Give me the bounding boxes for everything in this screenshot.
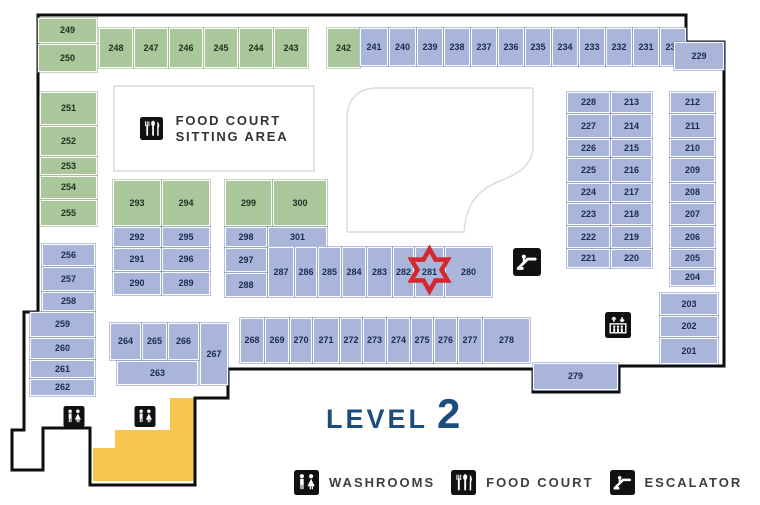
map-unit-249[interactable]: 249	[38, 18, 97, 43]
map-unit-237[interactable]: 237	[471, 28, 497, 66]
map-unit-203[interactable]: 203	[660, 293, 718, 315]
legend-item-food-court: FOOD COURT	[451, 470, 593, 495]
map-unit-296[interactable]: 296	[162, 248, 210, 271]
map-unit-264[interactable]: 264	[110, 323, 141, 360]
map-unit-281[interactable]: 281	[415, 247, 444, 297]
map-unit-233[interactable]: 233	[579, 28, 605, 66]
map-unit-292[interactable]: 292	[113, 227, 161, 247]
map-unit-263[interactable]: 263	[117, 361, 198, 385]
map-unit-294[interactable]: 294	[162, 180, 210, 226]
map-unit-266[interactable]: 266	[168, 323, 199, 360]
map-unit-255[interactable]: 255	[40, 200, 97, 226]
map-unit-228[interactable]: 228	[567, 92, 610, 113]
map-unit-275[interactable]: 275	[411, 318, 433, 363]
atrium-void	[347, 88, 533, 232]
map-unit-250[interactable]: 250	[38, 44, 97, 72]
map-unit-262[interactable]: 262	[30, 379, 95, 396]
map-unit-287[interactable]: 287	[268, 247, 294, 297]
map-unit-224[interactable]: 224	[567, 183, 610, 202]
map-unit-251[interactable]: 251	[40, 92, 97, 125]
map-unit-202[interactable]: 202	[660, 316, 718, 337]
map-unit-219[interactable]: 219	[611, 226, 652, 248]
map-unit-223[interactable]: 223	[567, 203, 610, 225]
map-unit-222[interactable]: 222	[567, 226, 610, 248]
legend-label: WASHROOMS	[329, 475, 435, 490]
escalator-icon	[513, 248, 541, 276]
map-unit-217[interactable]: 217	[611, 183, 652, 202]
map-unit-241[interactable]: 241	[360, 28, 388, 66]
level-title: LEVEL 2	[326, 390, 460, 438]
map-unit-267[interactable]: 267	[200, 323, 228, 385]
map-unit-265[interactable]: 265	[142, 323, 167, 360]
map-unit-236[interactable]: 236	[498, 28, 524, 66]
map-unit-295[interactable]: 295	[162, 227, 210, 247]
map-unit-301[interactable]: 301	[268, 227, 327, 247]
map-unit-252[interactable]: 252	[40, 126, 97, 156]
map-unit-209[interactable]: 209	[670, 158, 715, 182]
washrooms-icon	[134, 406, 156, 427]
legend-label: ESCALATOR	[645, 475, 743, 490]
map-unit-245[interactable]: 245	[204, 28, 238, 68]
map-unit-221[interactable]: 221	[567, 249, 610, 268]
map-unit-286[interactable]: 286	[295, 247, 317, 297]
map-unit-242[interactable]: 242	[327, 28, 360, 68]
map-unit-258[interactable]: 258	[42, 292, 95, 311]
food-court-icon	[140, 117, 163, 140]
map-unit-291[interactable]: 291	[113, 248, 161, 271]
map-unit-232[interactable]: 232	[606, 28, 632, 66]
map-unit-274[interactable]: 274	[387, 318, 410, 363]
map-unit-238[interactable]: 238	[444, 28, 470, 66]
map-unit-297[interactable]: 297	[225, 248, 267, 272]
map-unit-244[interactable]: 244	[239, 28, 273, 68]
elevator-icon	[604, 312, 632, 338]
map-unit-289[interactable]: 289	[162, 272, 210, 295]
map-unit-298[interactable]: 298	[225, 227, 267, 247]
map-unit-205[interactable]: 205	[670, 249, 715, 268]
map-unit-270[interactable]: 270	[290, 318, 312, 363]
map-unit-261[interactable]: 261	[30, 360, 95, 378]
map-unit-240[interactable]: 240	[389, 28, 416, 66]
map-unit-214[interactable]: 214	[611, 114, 652, 138]
map-unit-290[interactable]: 290	[113, 272, 161, 295]
map-unit-254[interactable]: 254	[40, 176, 97, 199]
map-unit-206[interactable]: 206	[670, 226, 715, 248]
map-unit-272[interactable]: 272	[340, 318, 362, 363]
map-unit-247[interactable]: 247	[134, 28, 168, 68]
food-court-icon	[451, 470, 476, 495]
map-unit-278[interactable]: 278	[483, 318, 530, 363]
map-unit-216[interactable]: 216	[611, 158, 652, 182]
map-unit-279[interactable]: 279	[533, 363, 618, 390]
map-unit-213[interactable]: 213	[611, 92, 652, 113]
map-unit-259[interactable]: 259	[30, 312, 95, 337]
map-unit-248[interactable]: 248	[99, 28, 133, 68]
map-unit-288[interactable]: 288	[225, 273, 267, 297]
map-unit-239[interactable]: 239	[417, 28, 443, 66]
map-unit-277[interactable]: 277	[458, 318, 482, 363]
map-unit-256[interactable]: 256	[42, 244, 95, 266]
map-unit-283[interactable]: 283	[367, 247, 392, 297]
map-unit-234[interactable]: 234	[552, 28, 578, 66]
map-unit-211[interactable]: 211	[670, 114, 715, 138]
legend: WASHROOMS FOOD COURT ESCALATOR	[294, 470, 758, 495]
map-unit-299[interactable]: 299	[225, 180, 272, 226]
food-court-sitting-area-label: FOOD COURT SITTING AREA	[176, 113, 289, 145]
map-unit-260[interactable]: 260	[30, 338, 95, 359]
map-unit-204[interactable]: 204	[670, 269, 715, 286]
map-unit-210[interactable]: 210	[670, 139, 715, 157]
map-unit-257[interactable]: 257	[42, 267, 95, 291]
map-unit-271[interactable]: 271	[313, 318, 339, 363]
legend-label: FOOD COURT	[486, 475, 593, 490]
level-number: 2	[437, 390, 460, 438]
map-unit-227[interactable]: 227	[567, 114, 610, 138]
map-unit-293[interactable]: 293	[113, 180, 161, 226]
washrooms-icon	[63, 406, 85, 427]
map-unit-220[interactable]: 220	[611, 249, 652, 268]
escalator-icon	[610, 470, 635, 495]
level-word: LEVEL	[326, 404, 428, 435]
map-unit-215[interactable]: 215	[611, 139, 652, 157]
map-unit-285[interactable]: 285	[318, 247, 341, 297]
map-unit-226[interactable]: 226	[567, 139, 610, 157]
map-unit-268[interactable]: 268	[240, 318, 264, 363]
mall-floor-plan: 2492502512522532542552562572582592602612…	[0, 0, 760, 505]
map-unit-282[interactable]: 282	[393, 247, 414, 297]
map-unit-207[interactable]: 207	[670, 203, 715, 225]
map-unit-208[interactable]: 208	[670, 183, 715, 202]
map-unit-246[interactable]: 246	[169, 28, 203, 68]
map-unit-273[interactable]: 273	[363, 318, 386, 363]
map-unit-231[interactable]: 231	[633, 28, 659, 66]
map-unit-218[interactable]: 218	[611, 203, 652, 225]
map-unit-229[interactable]: 229	[674, 42, 724, 70]
map-unit-225[interactable]: 225	[567, 158, 610, 182]
food-court-sitting-area: FOOD COURT SITTING AREA	[113, 85, 315, 172]
map-unit-284[interactable]: 284	[342, 247, 366, 297]
map-unit-269[interactable]: 269	[265, 318, 289, 363]
map-unit-201[interactable]: 201	[660, 338, 718, 364]
washrooms-icon	[294, 470, 319, 495]
map-unit-300[interactable]: 300	[273, 180, 327, 226]
map-unit-243[interactable]: 243	[274, 28, 308, 68]
legend-item-washrooms: WASHROOMS	[294, 470, 435, 495]
map-unit-212[interactable]: 212	[670, 92, 715, 113]
map-unit-235[interactable]: 235	[525, 28, 551, 66]
map-unit-276[interactable]: 276	[434, 318, 457, 363]
map-unit-280[interactable]: 280	[445, 247, 492, 297]
map-unit-253[interactable]: 253	[40, 157, 97, 175]
legend-item-escalator: ESCALATOR	[610, 470, 743, 495]
